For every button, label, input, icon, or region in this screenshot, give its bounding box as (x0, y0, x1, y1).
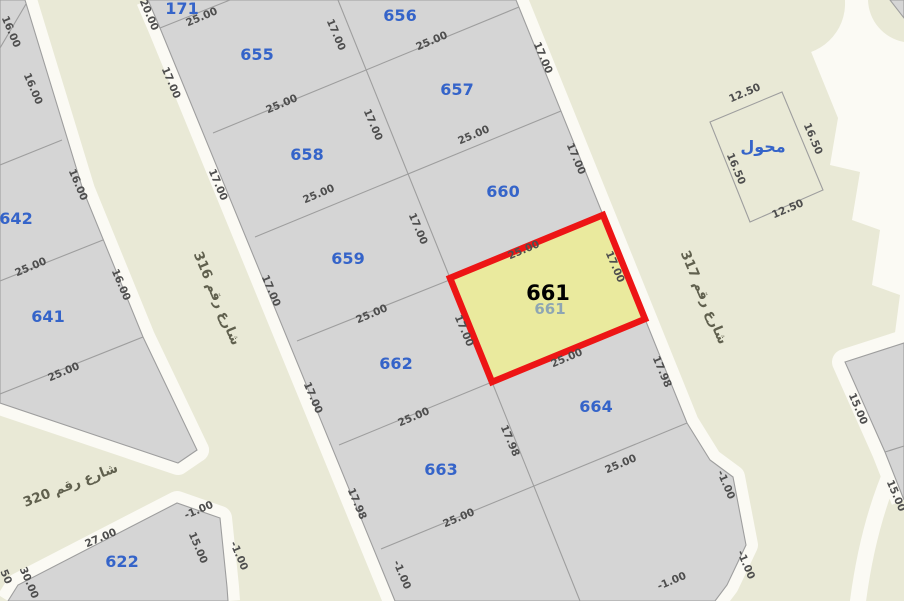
parcel-number-641: 641 (31, 307, 64, 326)
parcel-label-transformer: محول (740, 137, 785, 156)
parcel-number-664: 664 (579, 397, 612, 416)
parcel-number-662: 662 (379, 354, 412, 373)
map-canvas[interactable]: 171 655 656 657 658 659 660 662 663 664 … (0, 0, 904, 601)
parcel-number-661-selected: 661 (526, 281, 570, 305)
parcel-number-660: 660 (486, 182, 519, 201)
parcel-number-658: 658 (290, 145, 323, 164)
parcel-number-656: 656 (383, 6, 416, 25)
parcel-number-622: 622 (105, 552, 138, 571)
parcel-number-663: 663 (424, 460, 457, 479)
parcel-number-655: 655 (240, 45, 273, 64)
cadastral-map[interactable]: 171 655 656 657 658 659 660 662 663 664 … (0, 0, 904, 601)
parcel-number-642: 642 (0, 209, 33, 228)
parcel-number-657: 657 (440, 80, 473, 99)
parcel-number-659: 659 (331, 249, 364, 268)
